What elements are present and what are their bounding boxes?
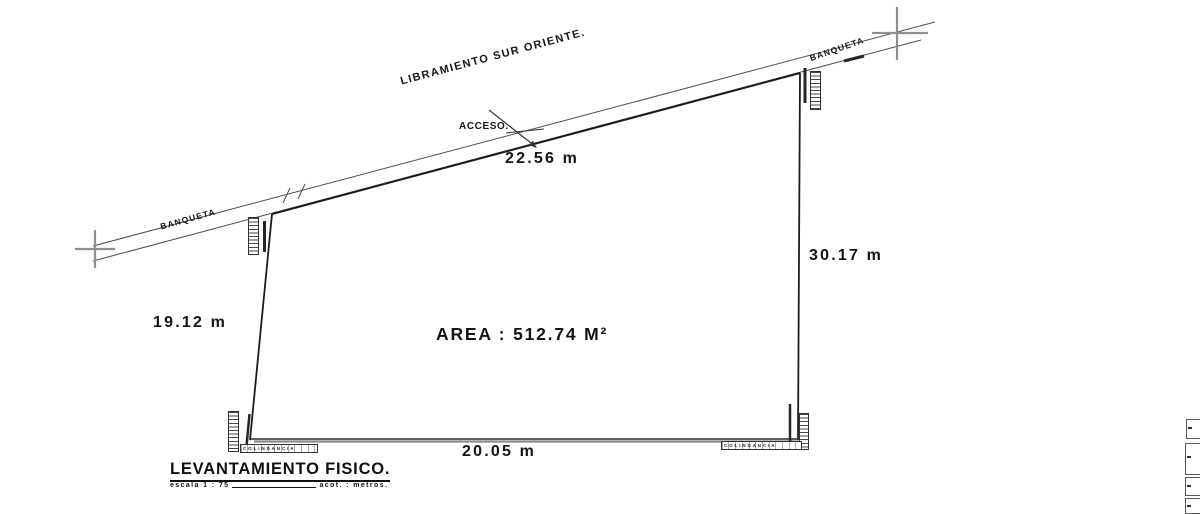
scale-label: escala 1 : 75	[170, 482, 229, 489]
colindancia-ladder-top-right	[810, 71, 821, 110]
access-label: ACCESO.	[459, 121, 509, 132]
corner-wall-marks	[247, 56, 865, 448]
survey-linework	[0, 0, 1200, 507]
colindancia-ladder-bottom-left	[228, 411, 239, 452]
colindancia-ladder-top-left	[248, 217, 259, 255]
area-label: AREA : 512.74 M²	[436, 324, 608, 345]
colindancia-bar-bottom-right: COLINDANCIA	[721, 441, 802, 450]
drawing-title: LEVANTAMIENTO FISICO.	[170, 460, 390, 482]
cross-marker-left	[75, 230, 115, 268]
road-lines	[93, 22, 935, 261]
dimension-top: 22.56 m	[505, 150, 579, 168]
survey-drawing-canvas: COLINDANCIA COLINDANCIA LIBRAMIENTO SUR …	[0, 0, 1200, 507]
dimension-left: 19.12 m	[153, 314, 227, 332]
edge-clipped-box-2	[1185, 443, 1200, 475]
sidewalk-ticks	[283, 184, 305, 203]
dimension-bottom: 20.05 m	[462, 443, 536, 461]
units-label: acot. : metros.	[319, 482, 388, 489]
edge-clipped-box-4	[1185, 498, 1200, 514]
cross-marker-right	[872, 7, 928, 60]
edge-clipped-box-3	[1185, 477, 1200, 496]
colindancia-bar-bottom-left: COLINDANCIA	[240, 444, 318, 453]
property-boundary	[250, 73, 800, 442]
title-block: LEVANTAMIENTO FISICO. escala 1 : 75 acot…	[170, 460, 390, 489]
dimension-right: 30.17 m	[809, 247, 883, 265]
scale-rule-line	[232, 487, 316, 488]
edge-clipped-box-1	[1186, 419, 1200, 439]
